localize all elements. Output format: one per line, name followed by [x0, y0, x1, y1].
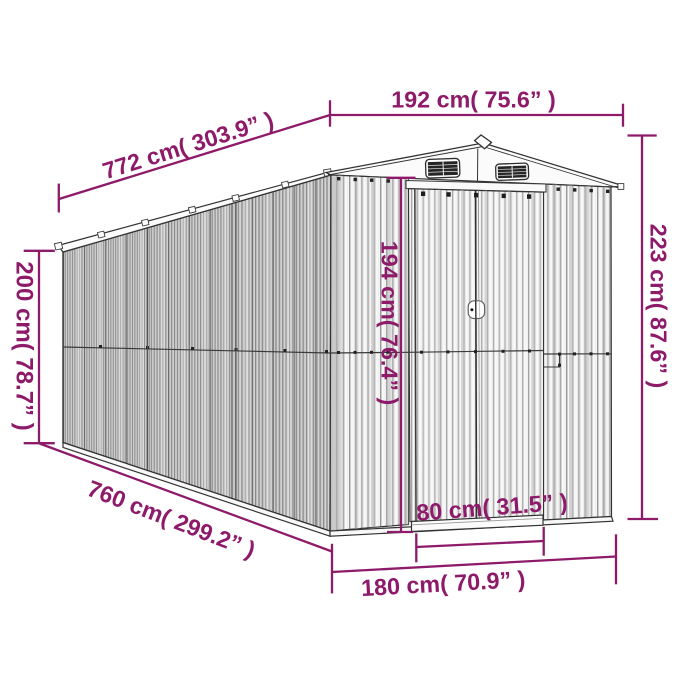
svg-text:223 cm( 87.6” ): 223 cm( 87.6” ) [646, 224, 672, 388]
svg-text:200 cm( 78.7” ): 200 cm( 78.7” ) [11, 261, 38, 430]
svg-text:194 cm( 76.4” ): 194 cm( 76.4” ) [377, 241, 403, 405]
svg-text:192 cm( 75.6” ): 192 cm( 75.6” ) [391, 87, 555, 113]
